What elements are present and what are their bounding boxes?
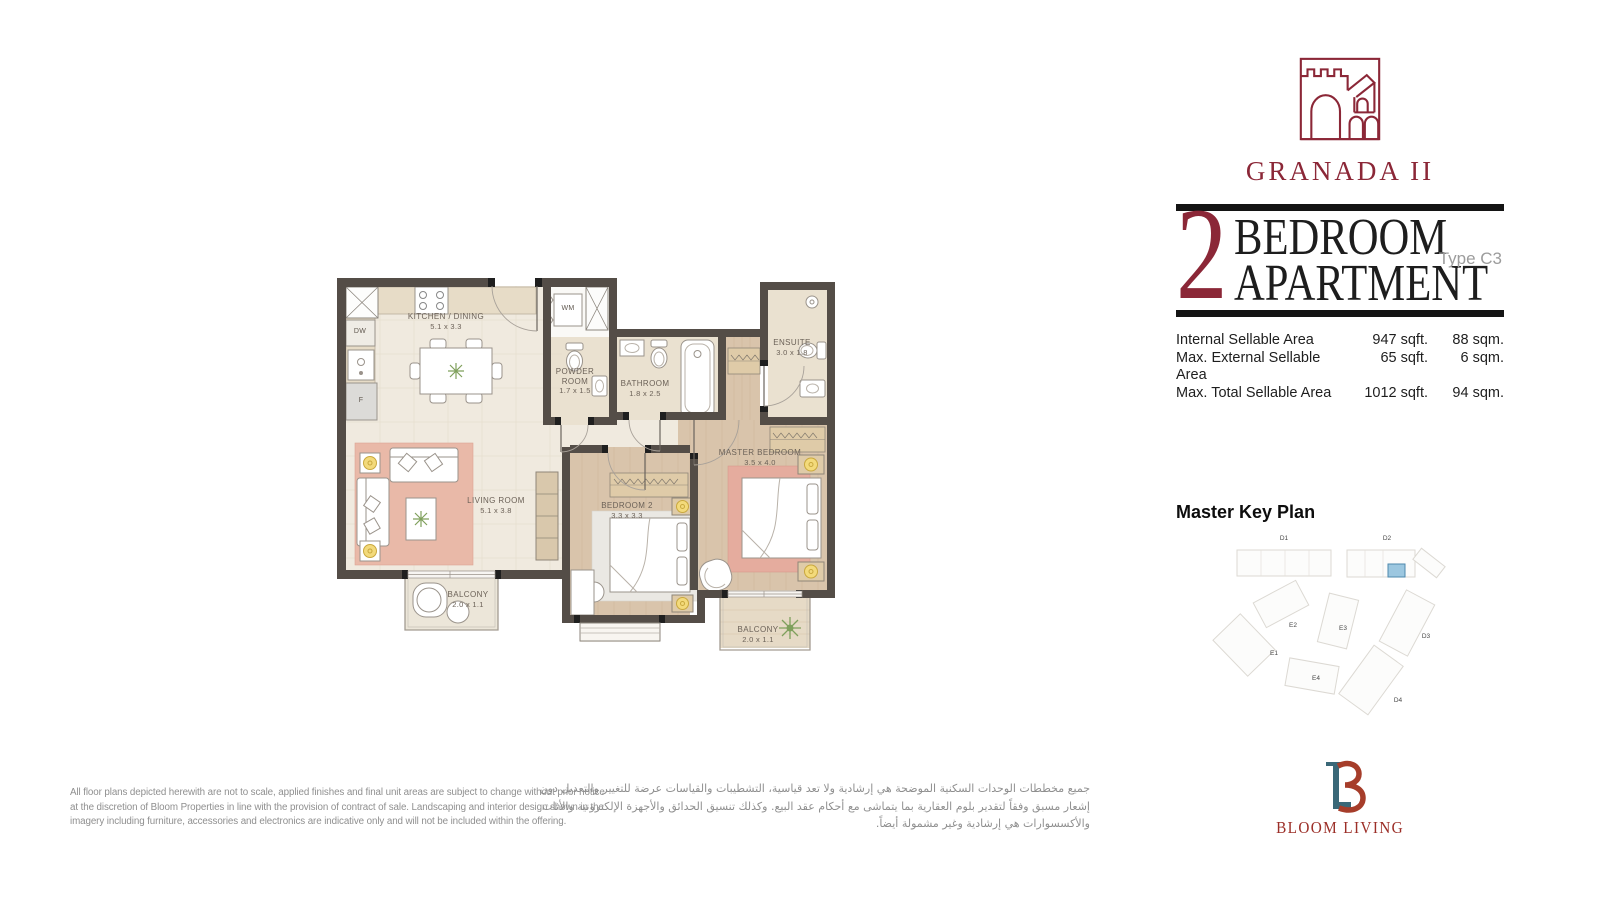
table-row: Max. External Sellable Area 65 sqft. 6 s… xyxy=(1176,350,1504,385)
disclaimer-ar-line3: والأكسسوارات هي إرشادية وغير مشمولة أيضا… xyxy=(540,815,1090,833)
unit-type: Type C3 xyxy=(1439,249,1502,269)
keyplan-label-e1: E1 xyxy=(1270,650,1278,657)
room-label-powder: POWDER ROOM1.7 x 1.5 xyxy=(547,367,603,396)
table-row: Max. Total Sellable Area 1012 sqft. 94 s… xyxy=(1176,385,1504,403)
keyplan-label-e3: E3 xyxy=(1339,625,1347,632)
bloom-lb-monogram-icon xyxy=(1320,758,1366,814)
unit-title-block: 2 BEDROOM APARTMENT Type C3 xyxy=(1176,211,1504,310)
floor-plan: KITCHEN / DINING5.1 x 3.3 POWDER ROOM1.7… xyxy=(330,270,860,655)
disclaimer-en-line3: imagery including furniture, accessories… xyxy=(70,815,605,830)
fixture-label-dishwasher: DW xyxy=(354,328,366,335)
room-label-living: LIVING ROOM5.1 x 3.8 xyxy=(467,496,525,515)
bedroom-count: 2 xyxy=(1176,199,1227,309)
area-table: Internal Sellable Area 947 sqft. 88 sqm.… xyxy=(1176,332,1504,402)
keyplan-label-d2: D2 xyxy=(1383,535,1391,542)
keyplan-label-d4: D4 xyxy=(1394,697,1402,704)
highlighted-unit xyxy=(1388,564,1405,577)
keyplan-label-e4: E4 xyxy=(1312,675,1320,682)
developer-wordmark: BLOOM LIVING xyxy=(1176,818,1504,838)
room-label-balcony-left: BALCONY2.0 x 1.1 xyxy=(447,590,488,609)
room-label-ensuite: ENSUITE3.0 x 1.8 xyxy=(773,338,810,357)
room-label-bathroom: BATHROOM1.8 x 2.5 xyxy=(621,379,670,398)
fixture-label-fridge: F xyxy=(359,397,364,404)
disclaimer-arabic: جميع مخططات الوحدات السكنية الموضحة هي إ… xyxy=(540,780,1090,833)
room-label-balcony-right: BALCONY2.0 x 1.1 xyxy=(737,625,778,644)
disclaimer-ar-line2: إشعار مسبق وفقاً لتقدير بلوم العقارية بم… xyxy=(540,798,1090,816)
brochure-page: KITCHEN / DINING5.1 x 3.3 POWDER ROOM1.7… xyxy=(0,0,1600,900)
room-label-bedroom2: BEDROOM 23.3 x 3.3 xyxy=(601,501,653,520)
room-label-kitchen: KITCHEN / DINING5.1 x 3.3 xyxy=(408,312,484,331)
key-plan-map xyxy=(1195,520,1475,738)
disclaimer-ar-line1: جميع مخططات الوحدات السكنية الموضحة هي إ… xyxy=(540,780,1090,798)
keyplan-label-d3: D3 xyxy=(1422,633,1430,640)
divider-bar-bottom xyxy=(1176,310,1504,317)
disclaimer-english: All floor plans depicted herewith are no… xyxy=(70,786,605,830)
info-panel: GRANADA II 2 BEDROOM APARTMENT Type C3 I… xyxy=(1176,0,1504,900)
disclaimer-en-line2: at the discretion of Bloom Properties in… xyxy=(70,801,605,816)
keyplan-label-d1: D1 xyxy=(1280,535,1288,542)
fixture-label-washing-machine: WM xyxy=(561,305,574,312)
castle-logo-icon xyxy=(1297,54,1383,144)
disclaimer-en-line1: All floor plans depicted herewith are no… xyxy=(70,786,605,801)
keyplan-label-e2: E2 xyxy=(1289,622,1297,629)
table-row: Internal Sellable Area 947 sqft. 88 sqm. xyxy=(1176,332,1504,350)
master-key-plan: D1 D2 E2 E3 D3 E1 E4 D4 xyxy=(1195,520,1475,738)
room-label-master: MASTER BEDROOM3.5 x 4.0 xyxy=(719,448,802,467)
